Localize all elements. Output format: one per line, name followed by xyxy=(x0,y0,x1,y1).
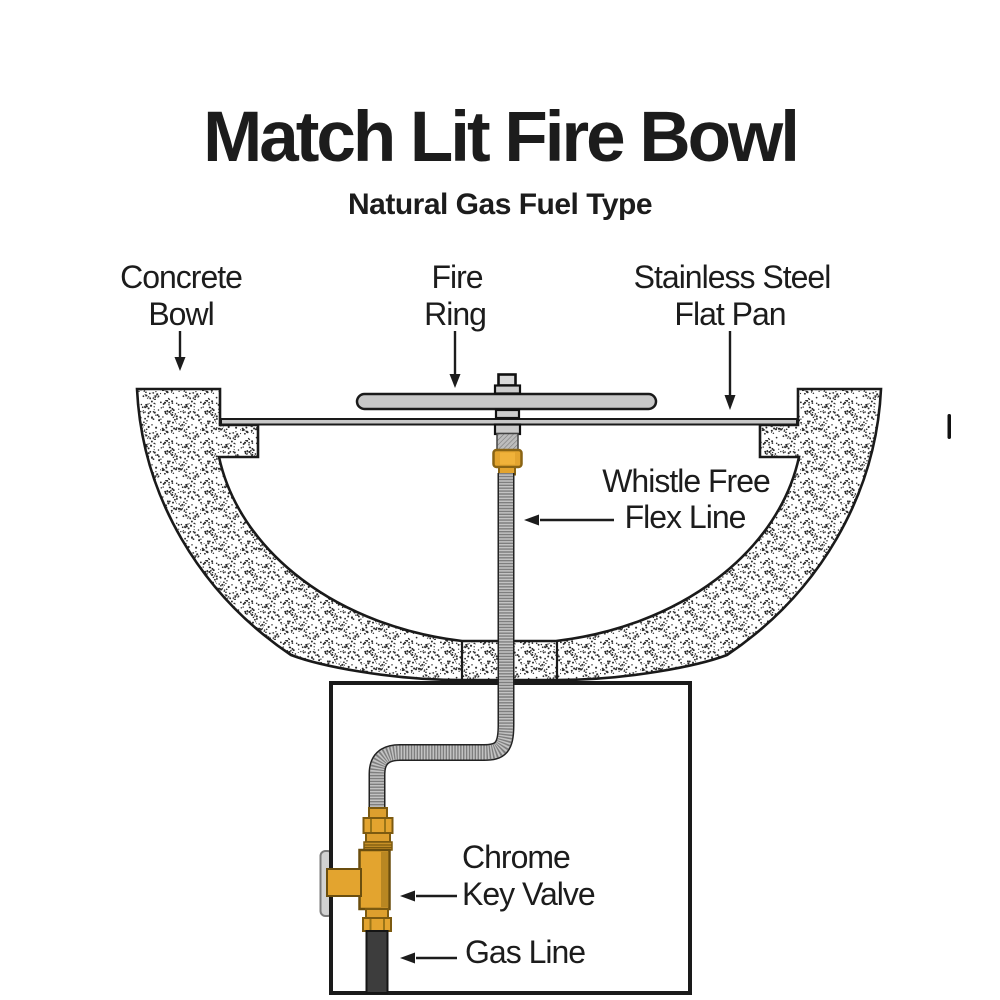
svg-text:Gas Line: Gas Line xyxy=(465,934,585,970)
svg-text:Key Valve: Key Valve xyxy=(462,876,595,912)
svg-text:Chrome: Chrome xyxy=(462,839,570,875)
svg-text:Natural Gas Fuel Type: Natural Gas Fuel Type xyxy=(348,188,652,221)
svg-text:Stainless Steel: Stainless Steel xyxy=(634,259,831,295)
svg-text:Match Lit Fire Bowl: Match Lit Fire Bowl xyxy=(203,98,797,177)
svg-text:Ring: Ring xyxy=(424,296,486,332)
svg-text:Whistle Free: Whistle Free xyxy=(602,463,770,499)
svg-text:Flex Line: Flex Line xyxy=(625,499,746,535)
svg-text:Bowl: Bowl xyxy=(148,296,213,332)
svg-text:Flat Pan: Flat Pan xyxy=(674,296,785,332)
svg-text:Fire: Fire xyxy=(431,259,482,295)
svg-text:Concrete: Concrete xyxy=(120,259,242,295)
